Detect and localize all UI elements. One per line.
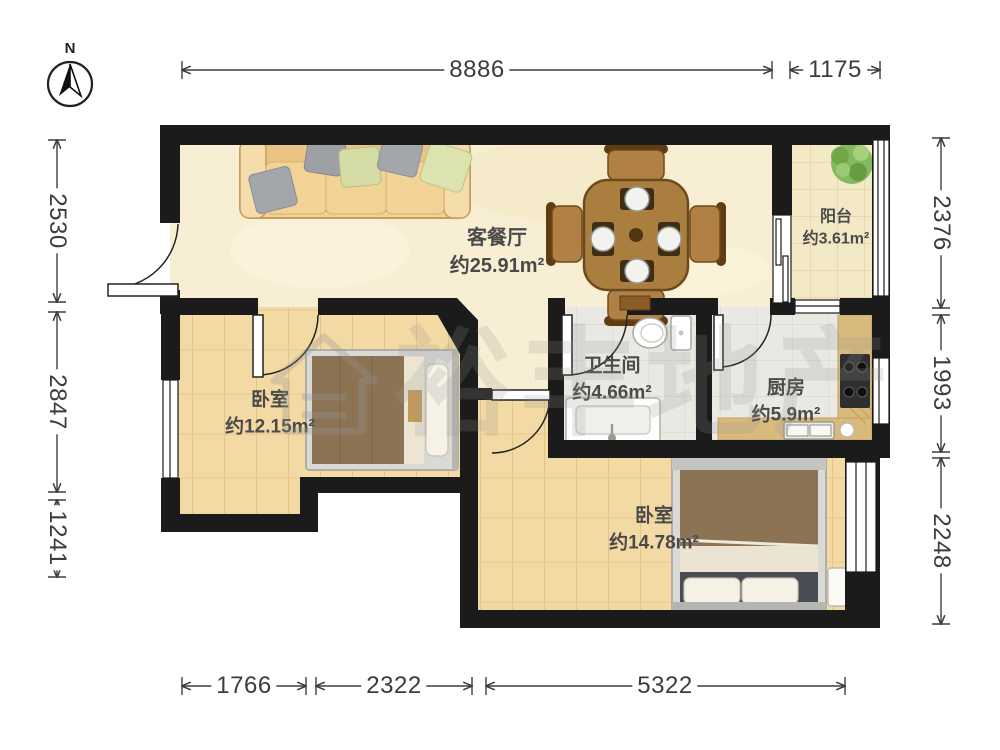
dim-right-1993: 1993 <box>927 350 955 415</box>
wall-living-bottom-a <box>161 298 258 315</box>
wall-bedroom2-bottom <box>460 610 880 628</box>
stove <box>840 354 870 408</box>
dim-left-2847: 2847 <box>43 369 71 434</box>
entry-door-leaf <box>108 284 178 296</box>
bed-single <box>306 350 458 470</box>
pillow <box>742 578 798 604</box>
hallway-floor <box>470 300 556 400</box>
kitchen-window <box>873 358 889 424</box>
dim-left-1241: 1241 <box>43 505 71 570</box>
wall-bedroom2-top <box>548 440 890 458</box>
living-room-label: 客餐厅 约25.91m² <box>450 224 545 280</box>
bedroom2-area: 约14.78m² <box>609 530 699 557</box>
sofa-pillow-green <box>338 146 381 187</box>
compass: N <box>44 40 96 112</box>
dim-bottom-1766: 1766 <box>211 672 276 700</box>
wall-living-bottom-b <box>318 298 455 315</box>
wall-left-upper <box>160 125 180 223</box>
bathroom-area: 约4.66m² <box>572 380 651 407</box>
bedroom1-label: 卧室 约12.15m² <box>225 387 315 440</box>
wall-bathroom-kitchen-divider <box>696 315 712 456</box>
balcony-name: 阳台 <box>803 207 870 229</box>
dim-top-1175: 1175 <box>803 56 867 84</box>
dim-left-2530: 2530 <box>43 188 71 253</box>
bedroom1-name: 卧室 <box>225 387 315 414</box>
entry-door-arc <box>112 224 178 288</box>
kitchen-label: 厨房 约5.9m² <box>752 375 821 428</box>
kitchen-door-leaf <box>714 315 723 370</box>
wall-balcony-left <box>772 125 792 215</box>
bathroom-name: 卫生间 <box>572 353 651 380</box>
dim-bottom-5322: 5322 <box>632 672 697 700</box>
floorplan-canvas: 裕丰地产 N 8886 1175 2530 2847 1241 2376 199… <box>0 0 1000 750</box>
wall-bedrooms-left <box>460 337 478 628</box>
wall-balcony-bottom <box>840 298 890 315</box>
balcony-label: 阳台 约3.61m² <box>803 207 870 252</box>
bedroom2-door-leaf <box>492 390 550 400</box>
dim-bottom-2322: 2322 <box>361 672 426 700</box>
kitchen-area: 约5.9m² <box>752 402 821 429</box>
compass-north-label: N <box>44 40 96 57</box>
bathroom-label: 卫生间 约4.66m² <box>572 353 651 406</box>
pillow <box>426 364 448 456</box>
sofa <box>240 134 473 218</box>
floorplan-drawing <box>0 0 1000 750</box>
wall-step-horizontal <box>300 477 478 493</box>
bathroom-door-leaf <box>562 315 572 375</box>
wall-door-stub <box>474 388 492 400</box>
wall-shelf <box>620 296 650 310</box>
balcony-area: 约3.61m² <box>803 229 870 251</box>
plant <box>831 142 873 184</box>
dim-right-2248: 2248 <box>927 508 955 573</box>
kitchen-name: 厨房 <box>752 375 821 402</box>
wall-bathroom-top-left <box>548 298 565 315</box>
living-room-name: 客餐厅 <box>450 224 545 252</box>
wall-bedroom1-bottom <box>161 514 318 532</box>
north-arrow-icon <box>44 58 96 110</box>
pillow <box>684 578 740 604</box>
wall-bedroom1-left <box>161 314 180 380</box>
bedroom1-door-leaf <box>253 315 263 377</box>
marble-swirl <box>230 212 410 288</box>
bedroom2-window <box>846 462 876 572</box>
wall-kitchen-top-left <box>712 298 718 315</box>
dim-right-2376: 2376 <box>927 190 955 255</box>
balcony-window <box>873 140 889 296</box>
living-room-area: 约25.91m² <box>450 252 545 280</box>
bedroom2-label: 卧室 约14.78m² <box>609 503 699 556</box>
bedroom1-area: 约12.15m² <box>225 414 315 441</box>
bedroom2-name: 卧室 <box>609 503 699 530</box>
dim-top-8886: 8886 <box>444 56 509 84</box>
